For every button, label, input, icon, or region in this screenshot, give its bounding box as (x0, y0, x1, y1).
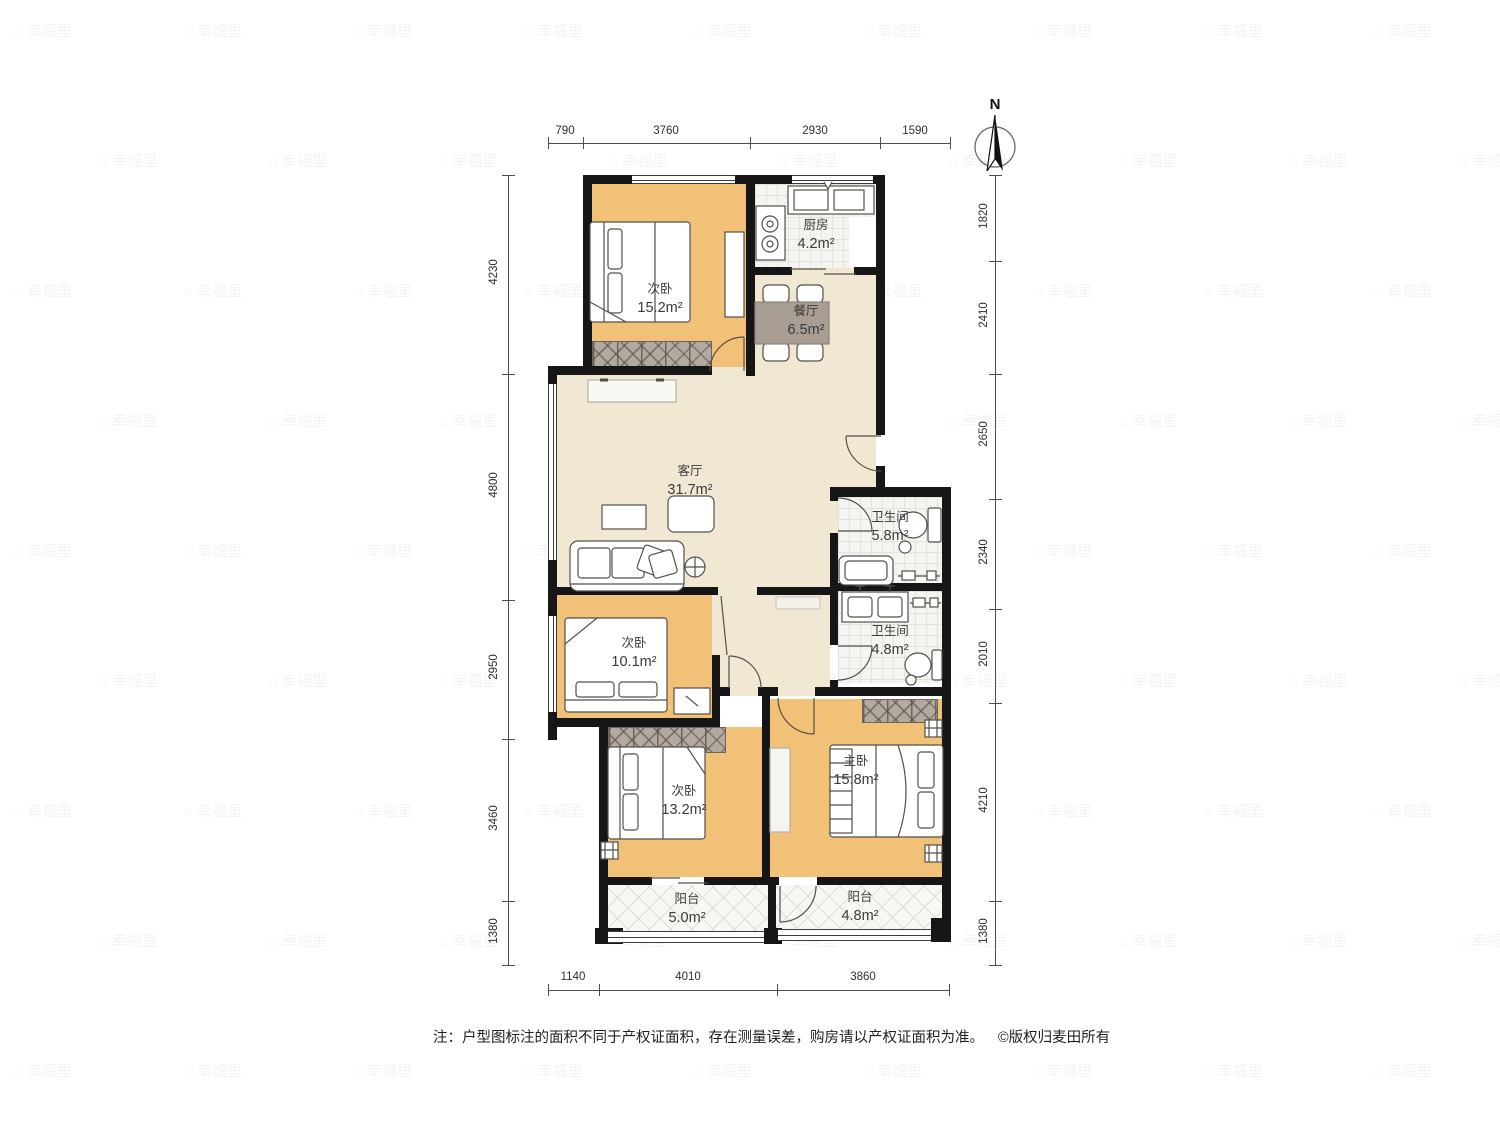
room-name: 卫生间 (848, 622, 932, 640)
dimension-tick (880, 137, 881, 149)
north-label: N (963, 96, 1027, 113)
room-label-bath-lower: 卫生间 4.8m² (848, 622, 932, 661)
dimension-line (508, 175, 509, 966)
dimension-label: 1820 (978, 196, 990, 236)
dimension-tick (502, 965, 515, 966)
dimension-tick (502, 374, 515, 375)
towel-bar-icon (898, 571, 940, 580)
room-label-dining: 餐厅 6.5m² (756, 302, 856, 341)
room-label-master: 主卧 15.8m² (806, 752, 906, 791)
dimension-label: 4230 (488, 252, 500, 292)
furniture-layer (0, 0, 1500, 1125)
sofa-icon (570, 541, 684, 591)
room-area: 5.0m² (637, 908, 737, 929)
dimension-tick (502, 901, 515, 902)
room-label-balcony-left: 阳台 5.0m² (637, 890, 737, 929)
dimension-label: 4210 (978, 780, 990, 820)
dimension-label: 790 (535, 125, 595, 137)
dimension-label: 4800 (488, 465, 500, 505)
nightstand-icon (674, 688, 710, 714)
dimension-tick (502, 739, 515, 740)
disclaimer-text: 注：户型图标注的面积不同于产权证面积，存在测量误差，购房请以产权证面积为准。 (433, 1030, 984, 1046)
dimension-tick (989, 901, 1002, 902)
bathtub-icon (839, 556, 893, 585)
dimension-label: 2650 (978, 414, 990, 454)
dimension-tick (989, 609, 1002, 610)
door-arc-icon (846, 436, 881, 471)
radiator-icon (925, 845, 942, 862)
room-area: 15.2m² (610, 298, 710, 319)
dimension-tick (583, 137, 584, 149)
dimension-label: 2010 (978, 634, 990, 674)
room-area: 4.2m² (776, 234, 856, 255)
room-name: 卫生间 (848, 508, 932, 526)
floor-lamp-icon (685, 557, 705, 577)
room-label-bath-upper: 卫生间 5.8m² (848, 508, 932, 547)
dimension-label: 2410 (978, 295, 990, 335)
footer-note: 注：户型图标注的面积不同于产权证面积，存在测量误差，购房请以产权证面积为准。©版… (433, 1026, 1110, 1047)
dimension-tick (950, 137, 951, 149)
room-area: 4.8m² (810, 906, 910, 927)
room-label-bedroom-top: 次卧 15.2m² (610, 280, 710, 319)
dimension-label: 1380 (978, 911, 990, 951)
dimension-label: 1140 (543, 971, 603, 983)
dresser-icon (770, 748, 790, 832)
door-arc-icon (778, 698, 814, 734)
radiator-icon (925, 720, 942, 737)
dimension-tick (750, 137, 751, 149)
sliding-door-icon (790, 269, 856, 274)
room-label-kitchen: 厨房 4.2m² (776, 216, 856, 255)
dimension-tick (599, 984, 600, 996)
room-name: 次卧 (634, 782, 734, 800)
room-name: 次卧 (584, 634, 684, 652)
coffee-table-icon (602, 496, 714, 532)
dimension-tick (548, 137, 549, 149)
towel-bar-icon (910, 598, 941, 607)
dimension-tick (548, 984, 549, 996)
room-area: 31.7m² (640, 480, 740, 501)
dimension-label: 3460 (488, 798, 500, 838)
dimension-line (995, 175, 996, 966)
kitchen-counter-icon (788, 182, 874, 214)
tv-cabinet-icon (588, 380, 676, 402)
room-area: 13.2m² (634, 800, 734, 821)
room-area: 6.5m² (756, 320, 856, 341)
dimension-label: 1590 (885, 125, 945, 137)
room-area: 10.1m² (584, 652, 684, 673)
room-name: 厨房 (776, 216, 856, 234)
dimension-line (548, 990, 950, 991)
room-area: 5.8m² (848, 526, 932, 547)
dimension-tick (989, 965, 1002, 966)
copyright-text: ©版权归麦田所有 (998, 1030, 1110, 1046)
sink-icon (842, 586, 908, 622)
room-name: 客厅 (640, 462, 740, 480)
room-area: 15.8m² (806, 770, 906, 791)
door-panel-icon (721, 596, 727, 655)
room-label-living: 客厅 31.7m² (640, 462, 740, 501)
room-name: 次卧 (610, 280, 710, 298)
dimension-tick (989, 374, 1002, 375)
dimension-label: 3860 (833, 971, 893, 983)
sliding-door-icon (650, 878, 708, 883)
doormat-icon (776, 597, 820, 609)
room-label-bedroom-bottom: 次卧 13.2m² (634, 782, 734, 821)
room-name: 阳台 (637, 890, 737, 908)
dimension-label: 2950 (488, 647, 500, 687)
room-name: 阳台 (810, 888, 910, 906)
radiator-icon (601, 842, 618, 859)
dimension-label: 2930 (785, 125, 845, 137)
door-arc-icon (710, 337, 744, 371)
dimension-tick (949, 984, 950, 996)
door-arc-icon (729, 656, 761, 688)
dimension-label: 2340 (978, 532, 990, 572)
room-name: 餐厅 (756, 302, 856, 320)
north-arrow: N (963, 96, 1027, 176)
compass-icon (967, 113, 1023, 175)
desk-icon (725, 232, 744, 317)
dimension-tick (989, 499, 1002, 500)
dimension-tick (989, 261, 1002, 262)
dimension-tick (989, 703, 1002, 704)
dimension-label: 4010 (658, 971, 718, 983)
room-name: 主卧 (806, 752, 906, 770)
dimension-tick (502, 175, 515, 176)
dimension-label: 1380 (488, 911, 500, 951)
dimension-label: 3760 (636, 125, 696, 137)
room-area: 4.8m² (848, 640, 932, 661)
dimension-tick (502, 600, 515, 601)
room-label-bedroom-mid: 次卧 10.1m² (584, 634, 684, 673)
dimension-tick (777, 984, 778, 996)
room-label-balcony-right: 阳台 4.8m² (810, 888, 910, 927)
